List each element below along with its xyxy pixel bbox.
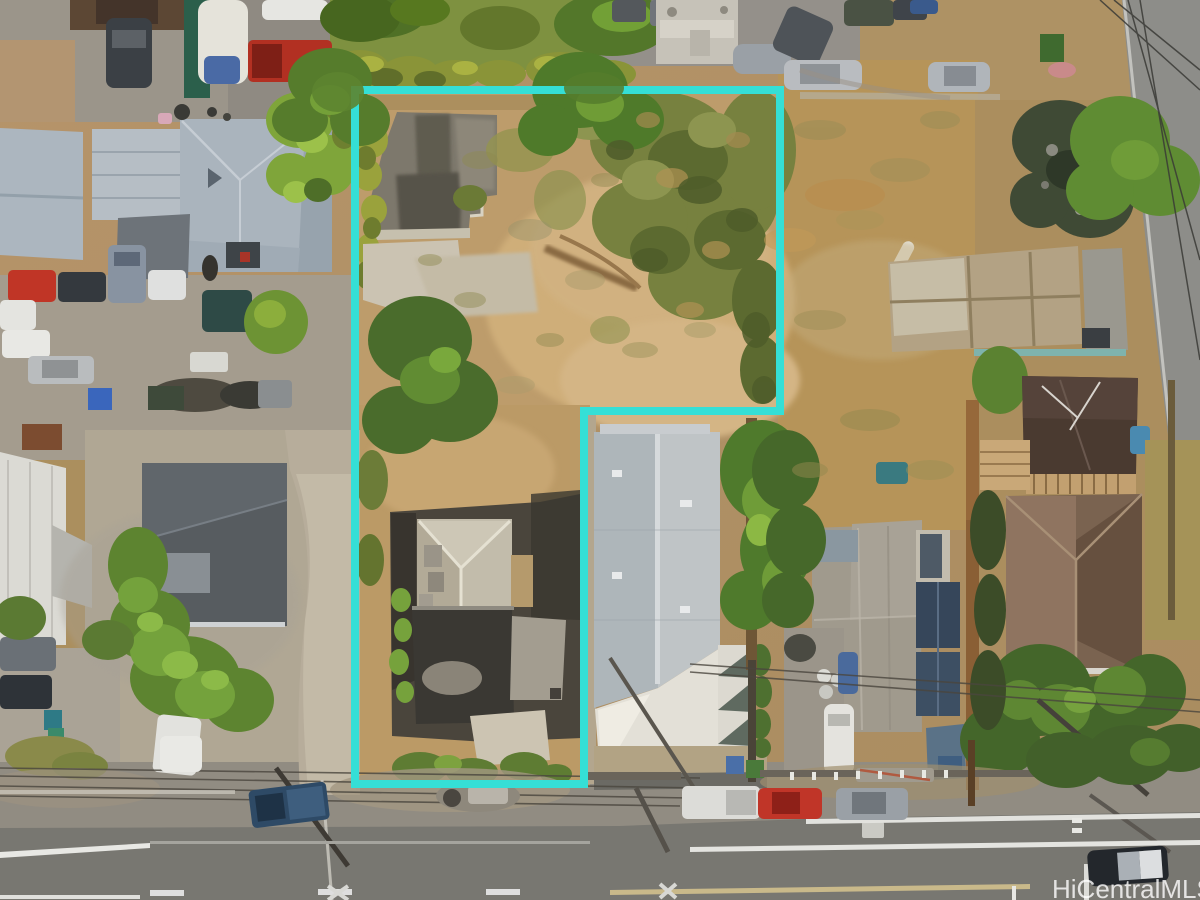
svg-text:HiCentralMLS: HiCentralMLS — [1052, 874, 1200, 900]
